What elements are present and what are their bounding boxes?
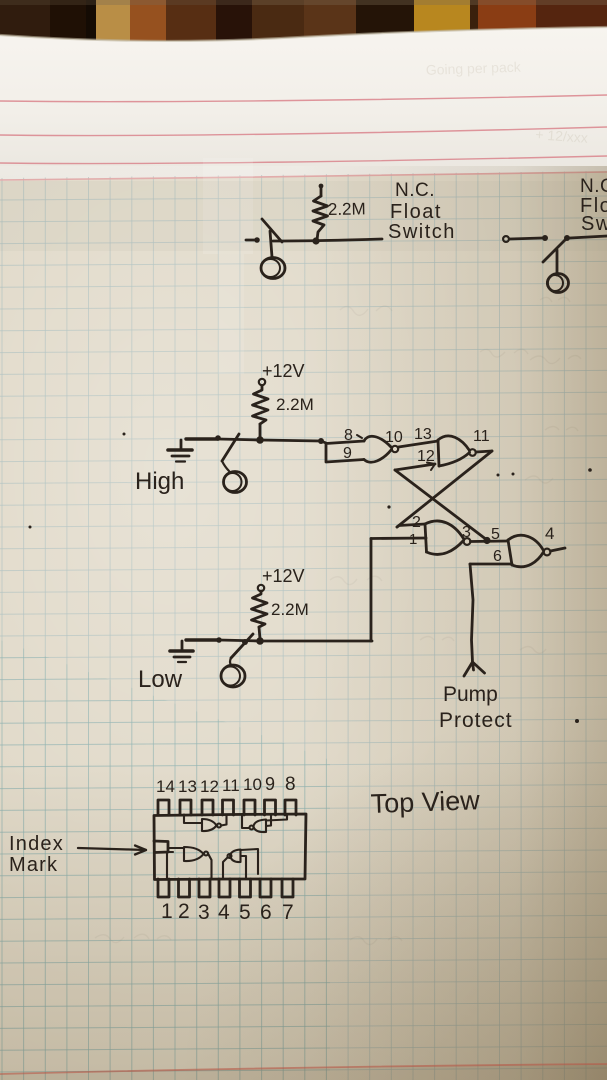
svg-text:N.C.: N.C. bbox=[395, 180, 435, 201]
svg-text:Index: Index bbox=[9, 833, 64, 855]
svg-text:3: 3 bbox=[198, 901, 210, 924]
svg-text:5: 5 bbox=[239, 901, 251, 924]
svg-text:6: 6 bbox=[493, 548, 502, 565]
svg-text:6: 6 bbox=[260, 901, 272, 924]
svg-text:High: High bbox=[135, 468, 184, 495]
svg-text:10: 10 bbox=[243, 775, 262, 794]
svg-text:13: 13 bbox=[178, 777, 197, 796]
svg-text:Mark: Mark bbox=[9, 854, 58, 876]
svg-text:Top View: Top View bbox=[370, 785, 481, 819]
svg-text:2: 2 bbox=[412, 514, 421, 531]
svg-text:+12V: +12V bbox=[262, 361, 305, 381]
svg-text:8: 8 bbox=[344, 427, 353, 444]
svg-text:2.2M: 2.2M bbox=[328, 199, 366, 219]
svg-text:Float: Float bbox=[390, 201, 442, 223]
svg-text:1: 1 bbox=[409, 531, 417, 548]
svg-text:2: 2 bbox=[178, 900, 190, 923]
svg-text:1: 1 bbox=[161, 900, 173, 923]
svg-text:12: 12 bbox=[200, 777, 219, 796]
svg-text:N.C: N.C bbox=[580, 176, 607, 197]
svg-text:14: 14 bbox=[156, 777, 175, 796]
svg-text:2.2M: 2.2M bbox=[276, 395, 314, 414]
svg-text:5: 5 bbox=[491, 526, 500, 543]
svg-text:Low: Low bbox=[138, 666, 183, 693]
svg-text:4: 4 bbox=[218, 901, 230, 924]
svg-text:11: 11 bbox=[473, 428, 490, 445]
svg-text:3: 3 bbox=[462, 524, 471, 541]
svg-text:12: 12 bbox=[417, 448, 435, 465]
svg-text:10: 10 bbox=[385, 429, 403, 446]
svg-text:9: 9 bbox=[343, 445, 352, 462]
svg-text:Protect: Protect bbox=[439, 709, 513, 732]
svg-text:4: 4 bbox=[545, 524, 554, 543]
svg-text:7: 7 bbox=[282, 901, 294, 924]
svg-text:9: 9 bbox=[265, 774, 275, 794]
svg-text:8: 8 bbox=[285, 774, 296, 795]
svg-text:Switch: Switch bbox=[388, 221, 456, 243]
svg-text:2.2M: 2.2M bbox=[271, 600, 309, 619]
svg-text:Going per pack: Going per pack bbox=[426, 59, 522, 78]
svg-text:11: 11 bbox=[222, 776, 240, 795]
svg-text:13: 13 bbox=[414, 426, 432, 443]
svg-text:Pump: Pump bbox=[443, 683, 498, 706]
svg-text:+12V: +12V bbox=[262, 566, 305, 586]
svg-text:Swi: Swi bbox=[581, 213, 607, 235]
